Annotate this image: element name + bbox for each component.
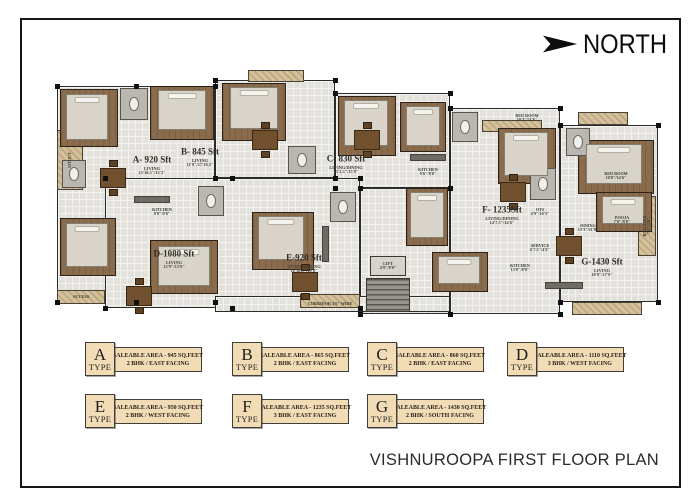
- legend-type-letter: G: [376, 399, 388, 415]
- dining-chair: [109, 189, 118, 196]
- legend-area-text: SALEABLE AREA - 1235 SQ.FEET: [258, 404, 351, 412]
- legend-type-letter: B: [241, 347, 252, 363]
- legend-type-box: CTYPE: [367, 342, 397, 376]
- plan-bed-furniture: [504, 132, 548, 176]
- legend-facing-text: 3 BHK / WEST FACING: [548, 360, 612, 368]
- legend-plate: SALEABLE AREA - 1430 SQ.FEET2 BHK / SOUT…: [396, 399, 484, 424]
- unit-label-b: B- 845 Sft: [181, 148, 219, 157]
- dining-chair: [301, 293, 310, 300]
- wall-column: [558, 300, 563, 305]
- wall-column: [656, 123, 661, 128]
- plan-balcony: [578, 112, 628, 125]
- room-label: POOJA 7'0"/8'0": [614, 216, 631, 224]
- legend-facing-text: 2 BHK / EAST FACING: [127, 360, 190, 368]
- unit-dim-c: LIVING/DINING 13'1.5"/15'9": [329, 166, 362, 175]
- legend-type-box: GTYPE: [367, 394, 397, 428]
- legend-type-word: TYPE: [236, 415, 258, 424]
- legend-item-c: CTYPESALEABLE AREA - 860 SQ.FEET2 BHK / …: [367, 342, 487, 378]
- legend-type-box: DTYPE: [507, 342, 537, 376]
- wall-column: [358, 306, 363, 311]
- legend-plate: SALEABLE AREA - 950 SQ.FEET2 BHK / WEST …: [114, 399, 202, 424]
- plan-title: VISHNUROOPA FIRST FLOOR PLAN: [370, 451, 659, 470]
- bed-pillow: [417, 195, 437, 201]
- plan-bed-furniture: [410, 192, 444, 238]
- legend-type-letter: C: [376, 347, 387, 363]
- staircase: [366, 278, 410, 312]
- legend-type-box: ETYPE: [85, 394, 115, 428]
- room-label: KITCHEN 13'0"/8'0": [510, 264, 530, 272]
- wall-column: [213, 84, 218, 89]
- wall-column: [333, 91, 338, 96]
- legend-type-word: TYPE: [89, 363, 111, 372]
- plan-bed-furniture: [66, 94, 108, 140]
- legend-type-word: TYPE: [89, 415, 111, 424]
- wall-column: [103, 306, 108, 311]
- legend-area-text: SALEABLE AREA - 860 SQ.FEET: [395, 352, 485, 360]
- legend-item-f: FTYPESALEABLE AREA - 1235 SQ.FEET3 BHK /…: [232, 394, 352, 430]
- room-label: BED ROOM 10'0"/14'6": [604, 172, 627, 180]
- legend-area-text: SALEABLE AREA - 865 SQ.FEET: [260, 352, 350, 360]
- plan-toilet: [198, 186, 224, 216]
- wall-column: [230, 176, 235, 181]
- legend-plate: SALEABLE AREA - 1110 SQ.FEET3 BHK / WEST…: [536, 347, 624, 372]
- wall-column: [213, 78, 218, 83]
- wall-column: [230, 306, 235, 311]
- wall-column: [358, 312, 363, 317]
- unit-dim-f: LIVING/DINING 14'7.5"/14'6": [485, 217, 518, 226]
- room-label: BALCONY 7'3"/3'0": [643, 215, 651, 236]
- unit-dim-d: LIVING 13'9"/13'0": [163, 261, 184, 270]
- dining-chair: [109, 160, 118, 167]
- dining-chair: [509, 174, 518, 181]
- kitchen-counter: [410, 154, 446, 161]
- room-label: CORRIDOR 4'6" WIDE: [308, 302, 353, 306]
- legend-item-d: DTYPESALEABLE AREA - 1110 SQ.FEET3 BHK /…: [507, 342, 627, 378]
- wall-column: [448, 91, 453, 96]
- plan-dining-table: [292, 272, 318, 292]
- room-label: KITCHEN 8'0"/9'6": [152, 208, 172, 216]
- legend-type-letter: F: [242, 399, 251, 415]
- wall-column: [55, 300, 60, 305]
- bed-pillow: [267, 219, 294, 225]
- unit-label-f: F- 1235Sft: [482, 206, 522, 215]
- plan-dining-table: [252, 130, 278, 150]
- legend-type-box: FTYPE: [232, 394, 262, 428]
- wall-column: [558, 123, 563, 128]
- bed-pillow: [597, 147, 630, 153]
- unit-label-g: G-1430 Sft: [581, 258, 622, 267]
- wall-column: [333, 186, 338, 191]
- bed-pillow: [611, 199, 636, 205]
- legend-type-word: TYPE: [371, 363, 393, 372]
- legend-type-box: BTYPE: [232, 342, 262, 376]
- unit-dim-a: LIVING 15'10.5"/15'3": [139, 167, 166, 176]
- legend-type-letter: A: [94, 347, 106, 363]
- wall-column: [134, 300, 139, 305]
- wall-column: [55, 84, 60, 89]
- room-label: SERVICE 6'7.5"/4'0": [530, 244, 550, 252]
- legend-area-text: SALEABLE AREA - 1430 SQ.FEET: [393, 404, 486, 412]
- legend-facing-text: 2 BHK / EAST FACING: [274, 360, 337, 368]
- legend-item-a: ATYPESALEABLE AREA - 945 SQ.FEET2 BHK / …: [85, 342, 205, 378]
- room-label: KITCHEN 9'6"/8'0": [418, 168, 438, 176]
- room-label: LIFT 4'9"/8'0": [380, 262, 397, 270]
- dining-chair: [565, 228, 574, 235]
- unit-label-c: C- 830 Sft: [327, 155, 366, 164]
- legend-type-word: TYPE: [236, 363, 258, 372]
- bed-pillow: [447, 259, 472, 265]
- toilet-fixture: [129, 97, 139, 111]
- kitchen-counter: [134, 196, 170, 203]
- unit-label-d: D-1080 Sft: [154, 250, 195, 259]
- dining-chair: [135, 278, 144, 285]
- legend-type-letter: E: [95, 399, 105, 415]
- floor-plan-poster: { "north": {"label": "NORTH"}, "title": …: [0, 0, 700, 494]
- toilet-fixture: [573, 135, 583, 149]
- wall-column: [448, 106, 453, 111]
- plan-toilet: [288, 146, 316, 174]
- bed-pillow: [75, 226, 100, 232]
- legend-plate: SALEABLE AREA - 1235 SQ.FEET3 BHK / EAST…: [261, 399, 349, 424]
- wall-column: [558, 106, 563, 111]
- bed-pillow: [413, 109, 433, 115]
- plan-balcony: [248, 70, 304, 82]
- dining-chair: [363, 122, 372, 129]
- room-label: OTS 4'9"/10'3": [531, 208, 550, 216]
- dining-chair: [135, 307, 144, 314]
- bed-pillow: [240, 90, 269, 96]
- plan-dining-table: [126, 286, 152, 306]
- unit-dim-e: LIVING/DINING 16'10.5"/10'0": [287, 265, 320, 274]
- wall-column: [333, 78, 338, 83]
- legend-type-box: ATYPE: [85, 342, 115, 376]
- plan-bed-furniture: [158, 90, 206, 130]
- plan-dining-table: [500, 182, 526, 202]
- plan-toilet: [452, 112, 478, 142]
- room-label: BED ROOM 10'3"/11'6": [515, 114, 538, 122]
- legend-area-text: SALEABLE AREA - 1110 SQ.FEET: [534, 352, 627, 360]
- room-label: SITOUT: [68, 152, 72, 168]
- wall-column: [448, 186, 453, 191]
- toilet-fixture: [206, 194, 216, 208]
- wall-column: [213, 300, 218, 305]
- legend-area-text: SALEABLE AREA - 945 SQ.FEET: [113, 352, 203, 360]
- unit-label-e: E-920 Sft: [286, 254, 322, 263]
- plan-bed-furniture: [230, 87, 278, 129]
- bed-pillow: [353, 103, 379, 109]
- plan-balcony: [572, 302, 642, 315]
- toilet-fixture: [460, 120, 470, 134]
- plan-bed-furniture: [66, 223, 108, 267]
- dining-chair: [261, 122, 270, 129]
- wall-column: [333, 176, 338, 181]
- wall-column: [448, 312, 453, 317]
- legend-type-letter: D: [516, 347, 528, 363]
- wall-column: [358, 176, 363, 181]
- legend-facing-text: 2 BHK / WEST FACING: [126, 412, 190, 420]
- plan-bed-furniture: [406, 106, 440, 146]
- legend-area-text: SALEABLE AREA - 950 SQ.FEET: [113, 404, 203, 412]
- plan-dining-table: [354, 130, 380, 150]
- wall-column: [134, 84, 139, 89]
- legend-facing-text: 2 BHK / SOUTH FACING: [406, 412, 474, 420]
- legend-item-b: BTYPESALEABLE AREA - 865 SQ.FEET2 BHK / …: [232, 342, 352, 378]
- room-label: ACCESS: [73, 295, 90, 299]
- plan-dining-table: [556, 236, 582, 256]
- legend-item-e: ETYPESALEABLE AREA - 950 SQ.FEET2 BHK / …: [85, 394, 205, 430]
- legend-facing-text: 2 BHK / EAST FACING: [409, 360, 472, 368]
- wall-column: [358, 186, 363, 191]
- legend-type-word: TYPE: [371, 415, 393, 424]
- toilet-fixture: [69, 167, 79, 181]
- legend-item-g: GTYPESALEABLE AREA - 1430 SQ.FEET2 BHK /…: [367, 394, 487, 430]
- unit-dim-b: LIVING 11'9"/17'10.5": [187, 159, 214, 168]
- bed-pillow: [75, 97, 100, 103]
- toilet-fixture: [538, 177, 548, 191]
- toilet-fixture: [297, 153, 307, 167]
- legend-plate: SALEABLE AREA - 865 SQ.FEET2 BHK / EAST …: [261, 347, 349, 372]
- dining-chair: [261, 151, 270, 158]
- kitchen-counter: [322, 226, 329, 262]
- unit-label-a: A- 920 Sft: [133, 156, 172, 165]
- bed-pillow: [168, 93, 197, 99]
- wall-column: [558, 312, 563, 317]
- legend-type-word: TYPE: [511, 363, 533, 372]
- plan-toilet: [62, 160, 86, 188]
- wall-column: [656, 300, 661, 305]
- wall-column: [213, 176, 218, 181]
- legend-facing-text: 3 BHK / EAST FACING: [274, 412, 337, 420]
- plan-toilet: [120, 88, 148, 120]
- plan-bed-furniture: [438, 256, 480, 284]
- bed-pillow: [513, 135, 539, 141]
- unit-dim-g: LIVING 18'0"/17'9": [591, 269, 612, 278]
- legend-plate: SALEABLE AREA - 945 SQ.FEET2 BHK / EAST …: [114, 347, 202, 372]
- legend-plate: SALEABLE AREA - 860 SQ.FEET2 BHK / EAST …: [396, 347, 484, 372]
- wall-column: [103, 176, 108, 181]
- toilet-fixture: [338, 200, 348, 214]
- kitchen-counter: [545, 282, 583, 289]
- plan-toilet: [330, 192, 356, 222]
- room-label: DINING 13'3"/11'9": [578, 224, 599, 232]
- dining-chair: [565, 257, 574, 264]
